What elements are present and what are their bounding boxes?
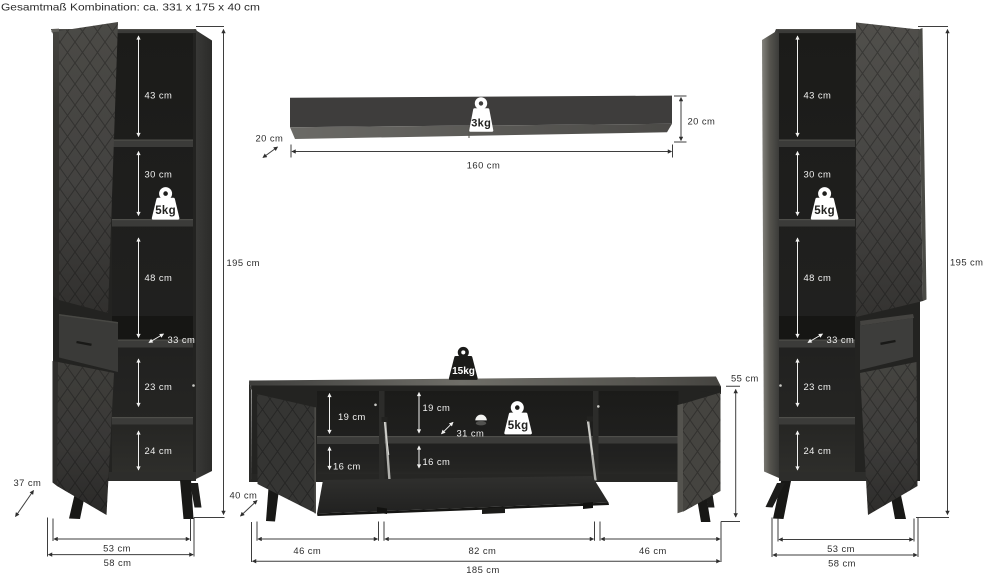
svg-text:16 cm: 16 cm (423, 456, 451, 467)
svg-text:16 cm: 16 cm (333, 461, 361, 472)
svg-text:46 cm: 46 cm (293, 545, 321, 556)
svg-text:160 cm: 160 cm (467, 160, 500, 171)
svg-text:33 cm: 33 cm (827, 334, 855, 345)
svg-text:19 cm: 19 cm (423, 402, 451, 413)
svg-text:185 cm: 185 cm (466, 564, 499, 575)
svg-text:30 cm: 30 cm (804, 169, 832, 180)
svg-text:5kg: 5kg (508, 420, 529, 432)
svg-text:3kg: 3kg (471, 117, 491, 129)
svg-text:58 cm: 58 cm (104, 557, 132, 568)
svg-text:40 cm: 40 cm (230, 489, 258, 500)
svg-text:33 cm: 33 cm (168, 334, 196, 345)
svg-text:55 cm: 55 cm (731, 372, 759, 383)
svg-text:195 cm: 195 cm (227, 257, 260, 268)
svg-text:43 cm: 43 cm (804, 89, 832, 100)
svg-text:20 cm: 20 cm (256, 133, 284, 144)
svg-text:5kg: 5kg (814, 205, 835, 217)
svg-text:37 cm: 37 cm (14, 477, 42, 488)
svg-text:43 cm: 43 cm (145, 89, 173, 100)
svg-text:20 cm: 20 cm (688, 115, 716, 126)
svg-text:58 cm: 58 cm (828, 557, 856, 568)
svg-text:195 cm: 195 cm (950, 257, 983, 268)
svg-text:19 cm: 19 cm (338, 411, 366, 422)
svg-text:46 cm: 46 cm (639, 545, 667, 556)
svg-text:23 cm: 23 cm (804, 381, 832, 392)
svg-text:82 cm: 82 cm (469, 545, 497, 556)
svg-text:48 cm: 48 cm (145, 272, 173, 283)
svg-text:15kg: 15kg (452, 366, 475, 377)
svg-text:23 cm: 23 cm (145, 381, 173, 392)
svg-text:31 cm: 31 cm (457, 427, 485, 438)
svg-text:24 cm: 24 cm (804, 445, 832, 456)
svg-text:53 cm: 53 cm (103, 543, 131, 554)
svg-text:24 cm: 24 cm (145, 445, 173, 456)
svg-text:30 cm: 30 cm (145, 169, 173, 180)
svg-text:48 cm: 48 cm (804, 272, 832, 283)
svg-text:53 cm: 53 cm (827, 543, 855, 554)
svg-text:5kg: 5kg (155, 205, 176, 217)
svg-text:Gesamtmaß Kombination: ca. 331: Gesamtmaß Kombination: ca. 331 x 175 x 4… (1, 2, 260, 13)
